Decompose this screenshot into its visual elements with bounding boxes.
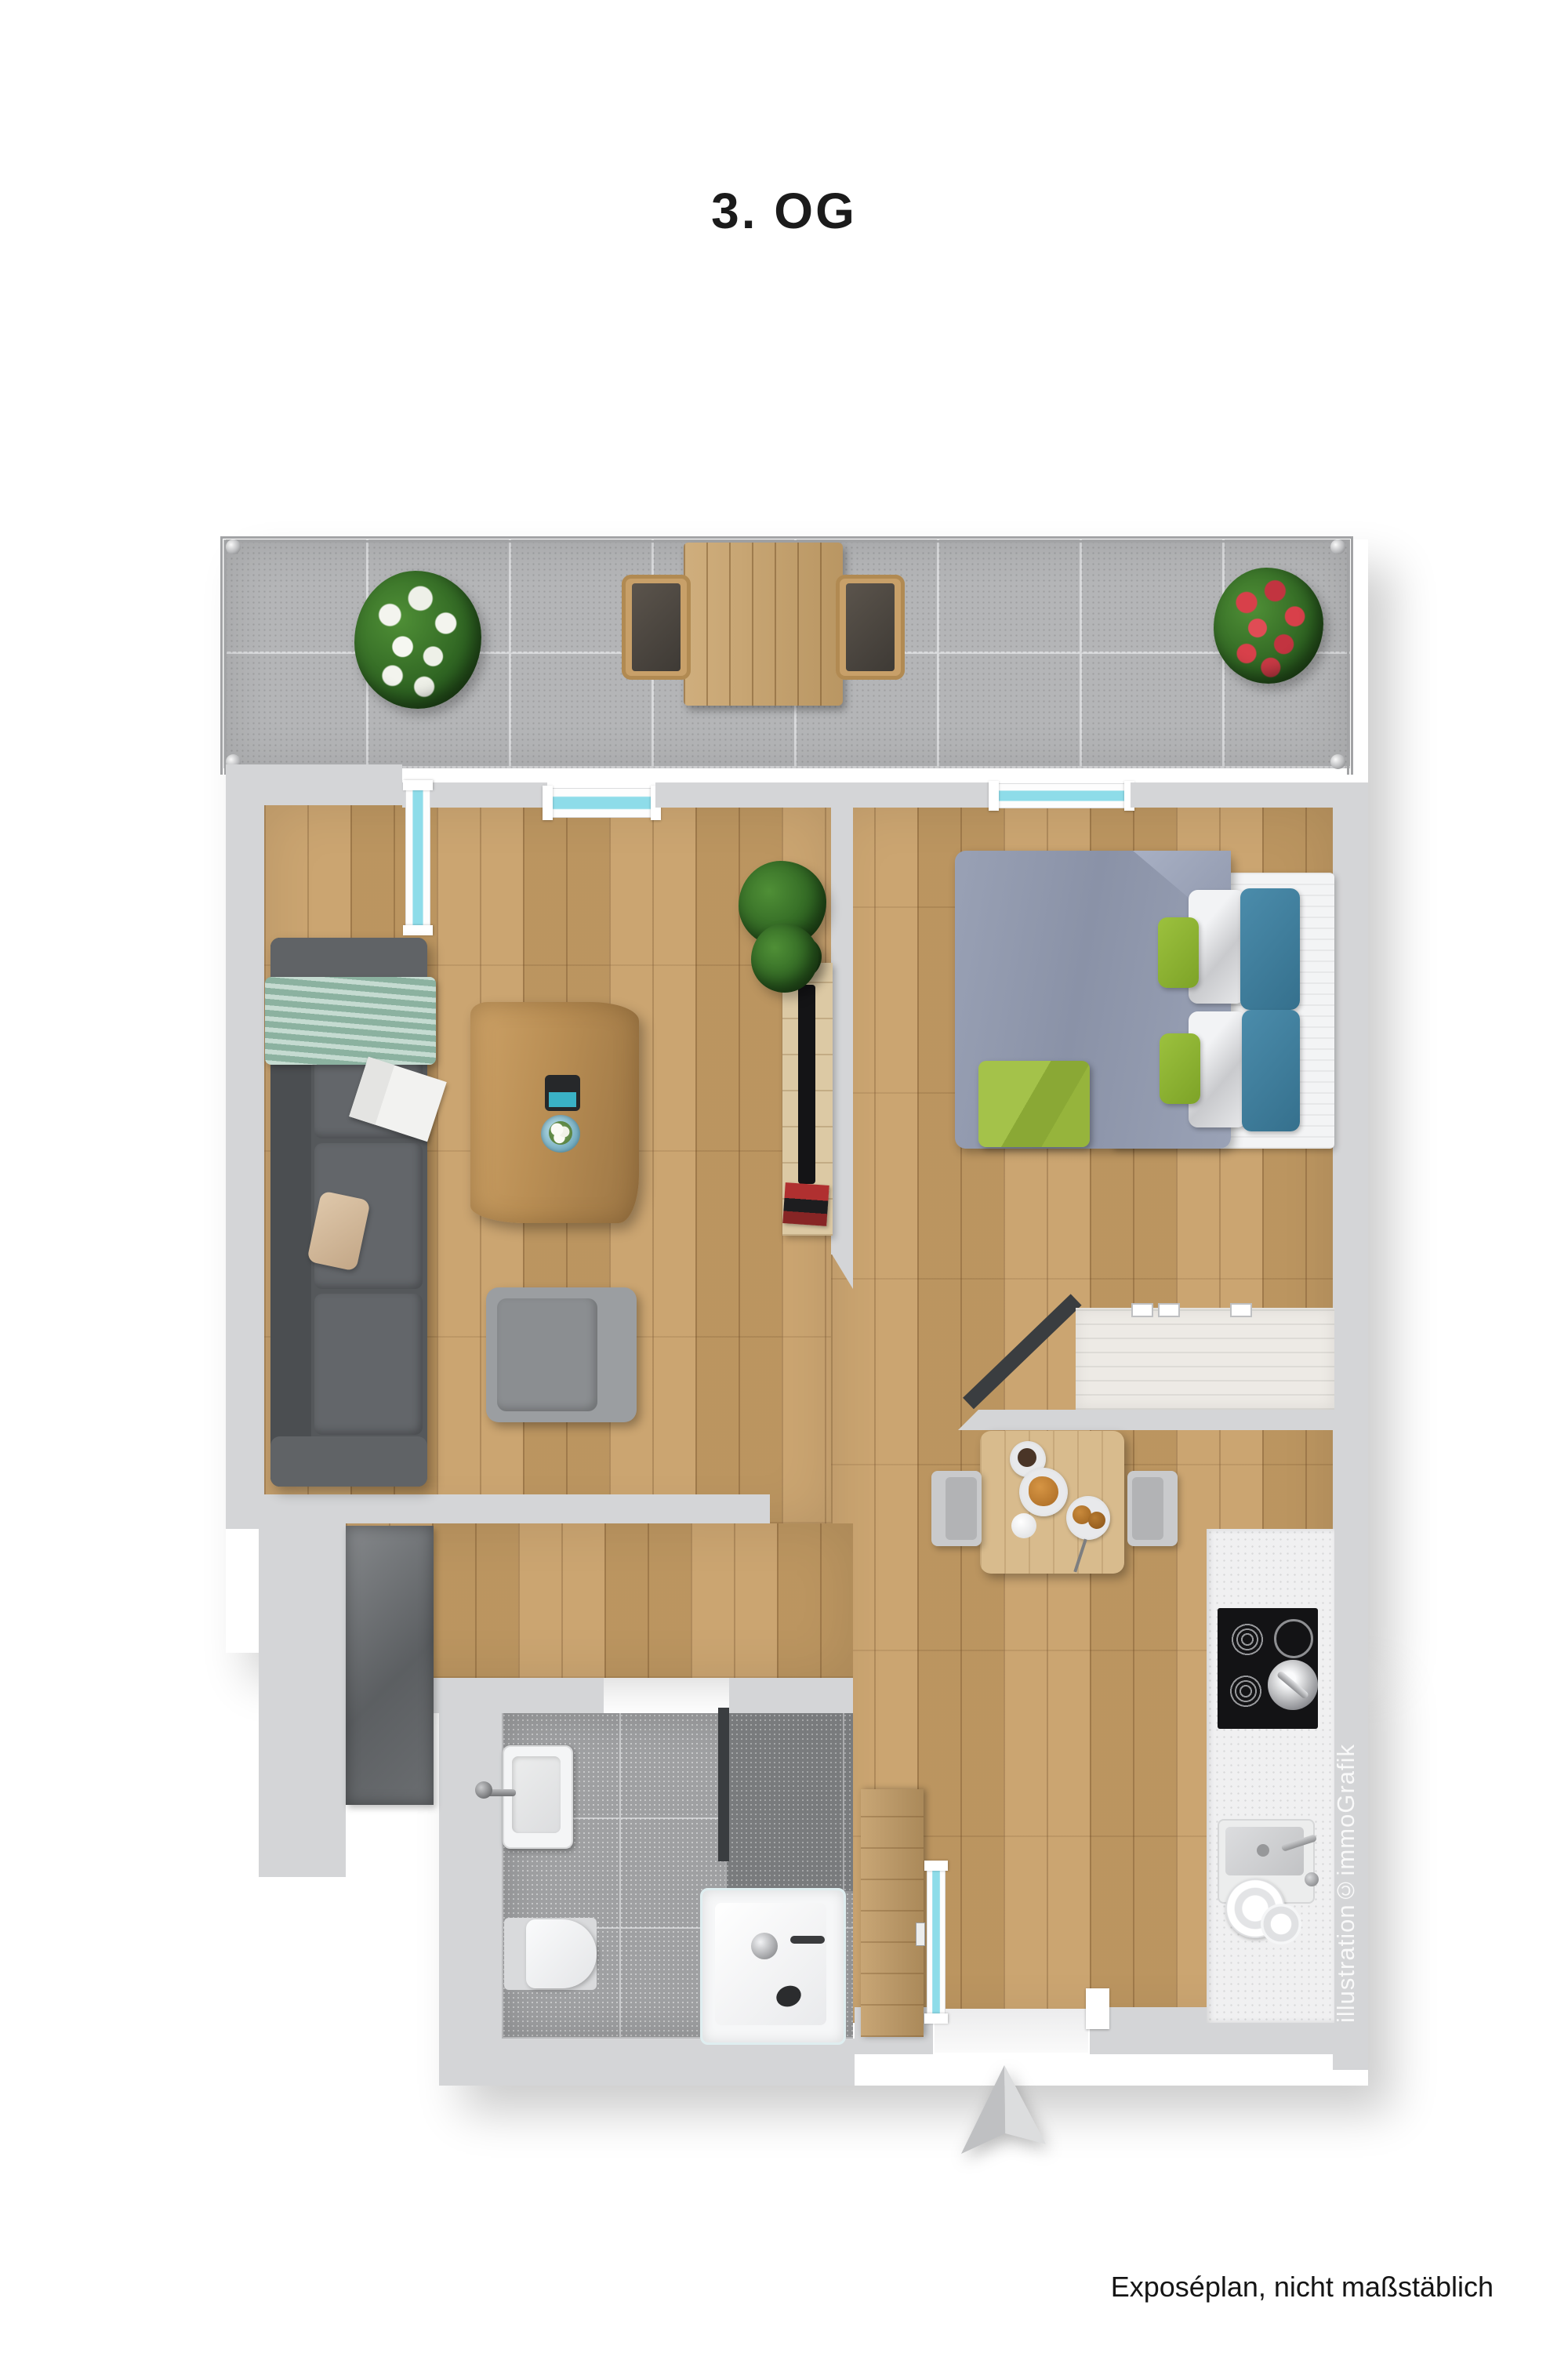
white-flower-plant xyxy=(354,571,481,709)
bed xyxy=(955,851,1334,1149)
chair-seat xyxy=(946,1477,977,1540)
living-room-plant xyxy=(751,924,818,993)
coffee-table xyxy=(470,1002,639,1223)
entry-side-glass xyxy=(927,1864,945,2020)
wardrobe-handle xyxy=(1131,1303,1153,1317)
sofa-blanket xyxy=(265,977,436,1065)
wall-left xyxy=(226,764,264,1529)
plate-stack xyxy=(1261,1904,1301,1944)
faucet-knob xyxy=(1305,1872,1319,1886)
red-flower-plant xyxy=(1214,568,1323,684)
burner-icon xyxy=(1225,1671,1266,1712)
folded-green-blanket xyxy=(978,1061,1090,1147)
door-jamb xyxy=(1086,1988,1109,2029)
armchair-seat xyxy=(497,1298,597,1411)
north-arrow-icon xyxy=(961,2065,1046,2154)
shower-fixture xyxy=(790,1936,825,1944)
wall-bath-south xyxy=(439,2039,855,2086)
wardrobe-handle xyxy=(1158,1303,1180,1317)
magazine-stack xyxy=(782,1182,829,1226)
balcony-door xyxy=(546,789,657,817)
bread xyxy=(1029,1476,1058,1506)
pillow-green xyxy=(1160,1033,1200,1104)
entry-threshold xyxy=(935,2009,1088,2053)
toilet xyxy=(504,1918,597,1990)
chair-cushion xyxy=(846,583,895,671)
burner-icon xyxy=(1274,1619,1313,1658)
white-cup xyxy=(1011,1513,1036,1538)
wall-hall-left-block xyxy=(259,1494,346,1877)
wall-bedroom-south xyxy=(958,1410,1334,1430)
tablet-screen xyxy=(549,1092,576,1107)
chair-cushion xyxy=(632,583,681,671)
page-title: 3. OG xyxy=(0,182,1568,240)
door-handle xyxy=(916,1922,925,1946)
pillow-blue xyxy=(1240,888,1300,1010)
living-room-side-window xyxy=(406,784,430,931)
balcony-chair-left xyxy=(622,575,691,680)
wall-living-bedroom-divider xyxy=(831,805,853,1254)
sofa-cushion xyxy=(314,1294,423,1435)
bathroom-sink xyxy=(503,1745,573,1849)
chair-seat xyxy=(1132,1477,1163,1540)
watermark-text: illustration©immoGrafik xyxy=(1332,1694,1368,2023)
railing-post-icon xyxy=(226,539,241,554)
vase-flowers xyxy=(549,1121,572,1145)
railing-post-icon xyxy=(1330,754,1345,769)
toilet-bowl xyxy=(526,1919,597,1988)
sink-drain xyxy=(1257,1844,1269,1857)
armchair xyxy=(486,1287,637,1422)
dining-chair-right xyxy=(1127,1471,1178,1546)
coffee-cup xyxy=(1018,1448,1036,1467)
bedroom-window xyxy=(993,784,1131,808)
bread-plate xyxy=(1019,1468,1068,1516)
burner-icon xyxy=(1227,1619,1268,1660)
shower-head xyxy=(751,1933,778,1959)
wardrobe-handle xyxy=(1230,1303,1252,1317)
bedroom-wardrobe xyxy=(1076,1308,1334,1410)
flower-vase xyxy=(541,1115,580,1153)
wall-bath-west xyxy=(439,1713,502,2086)
entry-door-leaf xyxy=(861,1789,924,2037)
pastry xyxy=(1088,1512,1105,1529)
cooktop xyxy=(1218,1608,1318,1729)
sink-basin xyxy=(512,1756,561,1833)
tv xyxy=(798,985,815,1184)
wall-top-b xyxy=(655,782,993,808)
footer-note: Exposéplan, nicht maßstäblich xyxy=(1111,2271,1494,2304)
bathroom-floor-dark-zone xyxy=(725,1713,853,1891)
croissant-plate xyxy=(1066,1496,1110,1540)
balcony-table xyxy=(684,543,843,706)
bath-faucet-knob xyxy=(475,1781,492,1799)
sofa-armrest-bottom xyxy=(270,1436,427,1487)
hallway-cabinet xyxy=(346,1526,434,1805)
balcony-chair-right xyxy=(836,575,905,680)
railing-post-icon xyxy=(1330,539,1345,554)
wall-living-south xyxy=(340,1494,770,1523)
kitchen-counter xyxy=(1207,1529,1334,2023)
pot-on-stove xyxy=(1268,1660,1318,1710)
shower-tray xyxy=(700,1888,846,2045)
dining-chair-left xyxy=(931,1471,982,1546)
floorplan-page: 3. OG xyxy=(0,0,1568,2360)
tablet xyxy=(545,1075,580,1111)
shower-tray-inner xyxy=(715,1903,826,2025)
pillow-green xyxy=(1158,917,1199,988)
pillow-blue xyxy=(1242,1010,1300,1131)
wall-bath-north-right xyxy=(729,1678,853,1713)
shower-partition-wall xyxy=(718,1708,729,1861)
